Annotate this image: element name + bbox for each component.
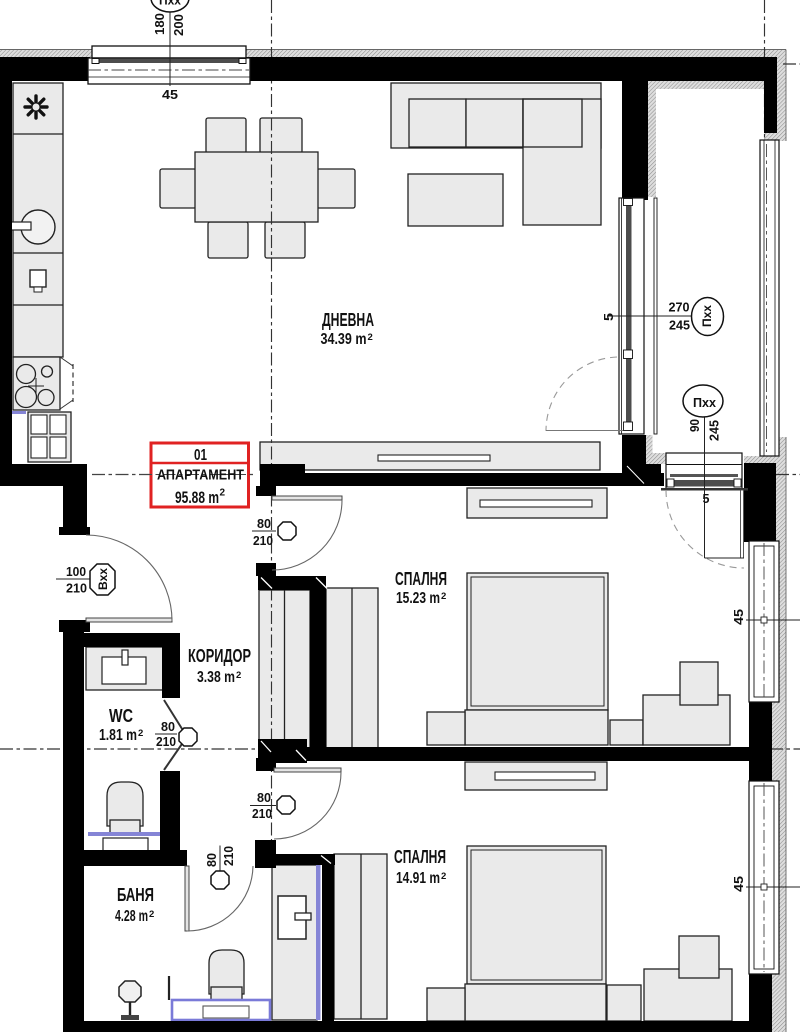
svg-text:210: 210: [222, 846, 236, 866]
svg-text:1.81 m: 1.81 m: [99, 727, 137, 744]
svg-text:245: 245: [669, 319, 690, 333]
svg-text:270: 270: [669, 301, 690, 315]
svg-text:WC: WC: [109, 706, 133, 726]
svg-text:90: 90: [688, 419, 702, 432]
svg-text:КОРИДОР: КОРИДОР: [188, 646, 251, 666]
svg-text:5: 5: [703, 492, 710, 506]
svg-text:80: 80: [205, 853, 219, 867]
svg-text:3.38 m: 3.38 m: [197, 669, 235, 686]
svg-text:14.91 m: 14.91 m: [396, 870, 440, 887]
svg-text:245: 245: [708, 420, 722, 441]
svg-text:80: 80: [257, 791, 271, 805]
svg-text:200: 200: [172, 14, 186, 36]
svg-text:2: 2: [441, 591, 446, 602]
svg-text:2: 2: [149, 909, 154, 920]
svg-text:80: 80: [161, 720, 175, 734]
svg-text:180: 180: [153, 13, 167, 35]
svg-text:Вхх: Вхх: [96, 568, 110, 590]
svg-text:45: 45: [162, 88, 178, 102]
svg-text:БАНЯ: БАНЯ: [117, 885, 154, 905]
svg-text:4.28 m: 4.28 m: [115, 908, 148, 925]
svg-text:210: 210: [253, 534, 273, 548]
svg-text:100: 100: [66, 565, 86, 579]
svg-text:2: 2: [138, 728, 143, 739]
svg-text:СПАЛНЯ: СПАЛНЯ: [394, 847, 446, 867]
svg-text:Пхх: Пхх: [693, 395, 717, 410]
svg-text:Пхх: Пхх: [159, 0, 181, 8]
svg-text:15.23 m: 15.23 m: [396, 590, 440, 607]
svg-text:5: 5: [602, 313, 616, 321]
svg-text:45: 45: [732, 876, 746, 892]
svg-text:210: 210: [252, 807, 272, 821]
svg-text:2: 2: [368, 332, 373, 343]
svg-text:210: 210: [156, 735, 176, 749]
svg-text:34.39 m: 34.39 m: [321, 331, 367, 348]
svg-text:45: 45: [732, 609, 746, 625]
svg-text:210: 210: [66, 582, 87, 596]
svg-text:2: 2: [441, 871, 446, 882]
svg-text:95.88 m: 95.88 m: [175, 488, 219, 507]
svg-text:2: 2: [220, 488, 226, 499]
svg-text:01: 01: [194, 447, 207, 464]
svg-text:АПАРТАМЕНТ: АПАРТАМЕНТ: [157, 467, 244, 484]
svg-text:2: 2: [236, 670, 241, 681]
svg-text:СПАЛНЯ: СПАЛНЯ: [395, 569, 447, 589]
svg-text:80: 80: [257, 517, 271, 531]
svg-text:Пхх: Пхх: [700, 305, 714, 327]
svg-text:ДНЕВНА: ДНЕВНА: [322, 310, 374, 330]
